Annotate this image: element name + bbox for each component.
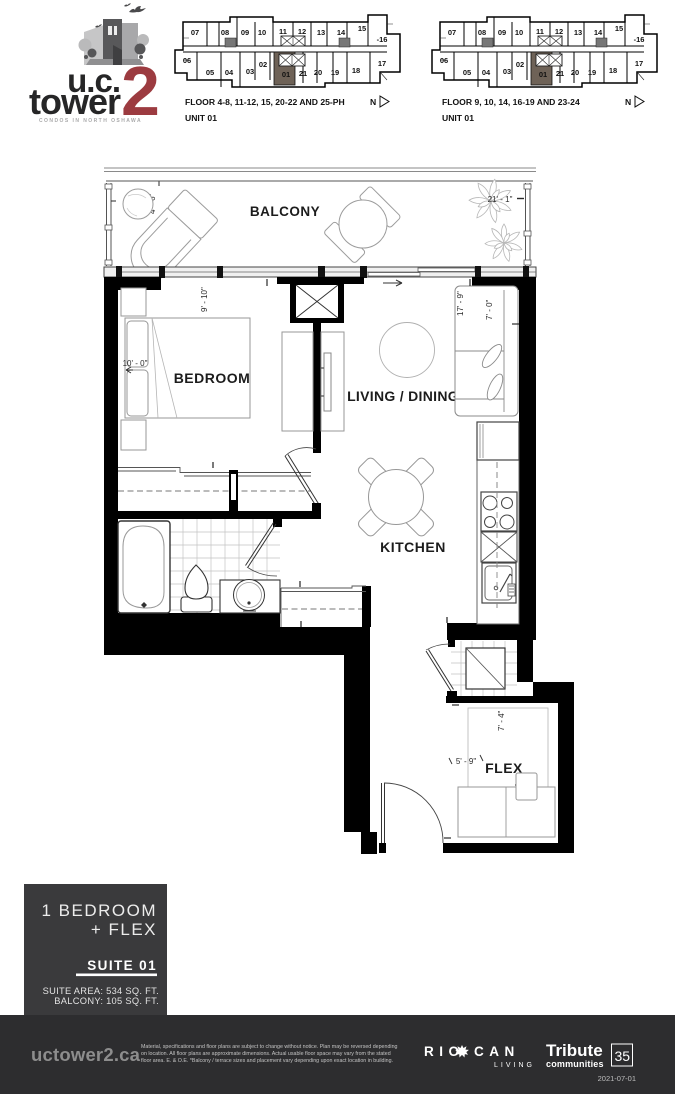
svg-text:floor area. E. & O.E. *Balco: floor area. E. & O.E. *Balcony / terrace… [141, 1058, 393, 1064]
svg-text:5' - 9": 5' - 9" [456, 757, 477, 766]
svg-text:UNIT 01: UNIT 01 [442, 113, 474, 123]
svg-text:LIVING: LIVING [494, 1062, 535, 1069]
svg-text:Tribute: Tribute [546, 1041, 603, 1060]
svg-text:uctower2.ca: uctower2.ca [31, 1044, 141, 1065]
svg-text:Material, specifications and f: Material, specifications and floor plans… [141, 1044, 398, 1050]
svg-text:FLOOR 4-8, 11-12, 15, 20-22 AN: FLOOR 4-8, 11-12, 15, 20-22 AND 25-PH [185, 97, 345, 107]
svg-text:+ FLEX: + FLEX [91, 920, 157, 939]
svg-text:17' - 9": 17' - 9" [456, 291, 465, 316]
svg-text:on location. All floor plans a: on location. All floor plans are approxi… [141, 1051, 391, 1057]
svg-text:7' - 4": 7' - 4" [497, 710, 506, 731]
svg-text:SUITE 01: SUITE 01 [87, 958, 157, 973]
svg-text:9' - 10": 9' - 10" [200, 287, 209, 312]
svg-text:CONDOS IN NORTH OSHAWA: CONDOS IN NORTH OSHAWA [39, 118, 142, 124]
svg-text:1 BEDROOM: 1 BEDROOM [41, 901, 157, 920]
svg-text:BALCONY: 105 SQ. FT.: BALCONY: 105 SQ. FT. [54, 996, 159, 1006]
svg-text:tower: tower [29, 81, 121, 122]
svg-text:N: N [625, 97, 631, 107]
svg-text:communities: communities [546, 1059, 604, 1069]
svg-text:BALCONY: BALCONY [250, 204, 320, 219]
svg-text:35: 35 [615, 1048, 631, 1064]
svg-text:7' - 0": 7' - 0" [485, 299, 494, 320]
svg-text:LIVING / DINING: LIVING / DINING [347, 388, 459, 404]
svg-text:FLOOR 9, 10, 14, 16-19 AND 23-: FLOOR 9, 10, 14, 16-19 AND 23-24 [442, 97, 580, 107]
svg-text:21' - 1": 21' - 1" [488, 195, 513, 204]
svg-text:CAN: CAN [474, 1044, 520, 1059]
svg-text:SUITE AREA: 534 SQ. FT.: SUITE AREA: 534 SQ. FT. [43, 986, 159, 996]
svg-text:UNIT 01: UNIT 01 [185, 113, 217, 123]
svg-text:N: N [370, 97, 376, 107]
svg-text:KITCHEN: KITCHEN [380, 539, 446, 555]
svg-text:10' - 0": 10' - 0" [123, 359, 148, 368]
svg-text:BEDROOM: BEDROOM [174, 370, 251, 386]
svg-text:2021-07-01: 2021-07-01 [598, 1074, 636, 1083]
